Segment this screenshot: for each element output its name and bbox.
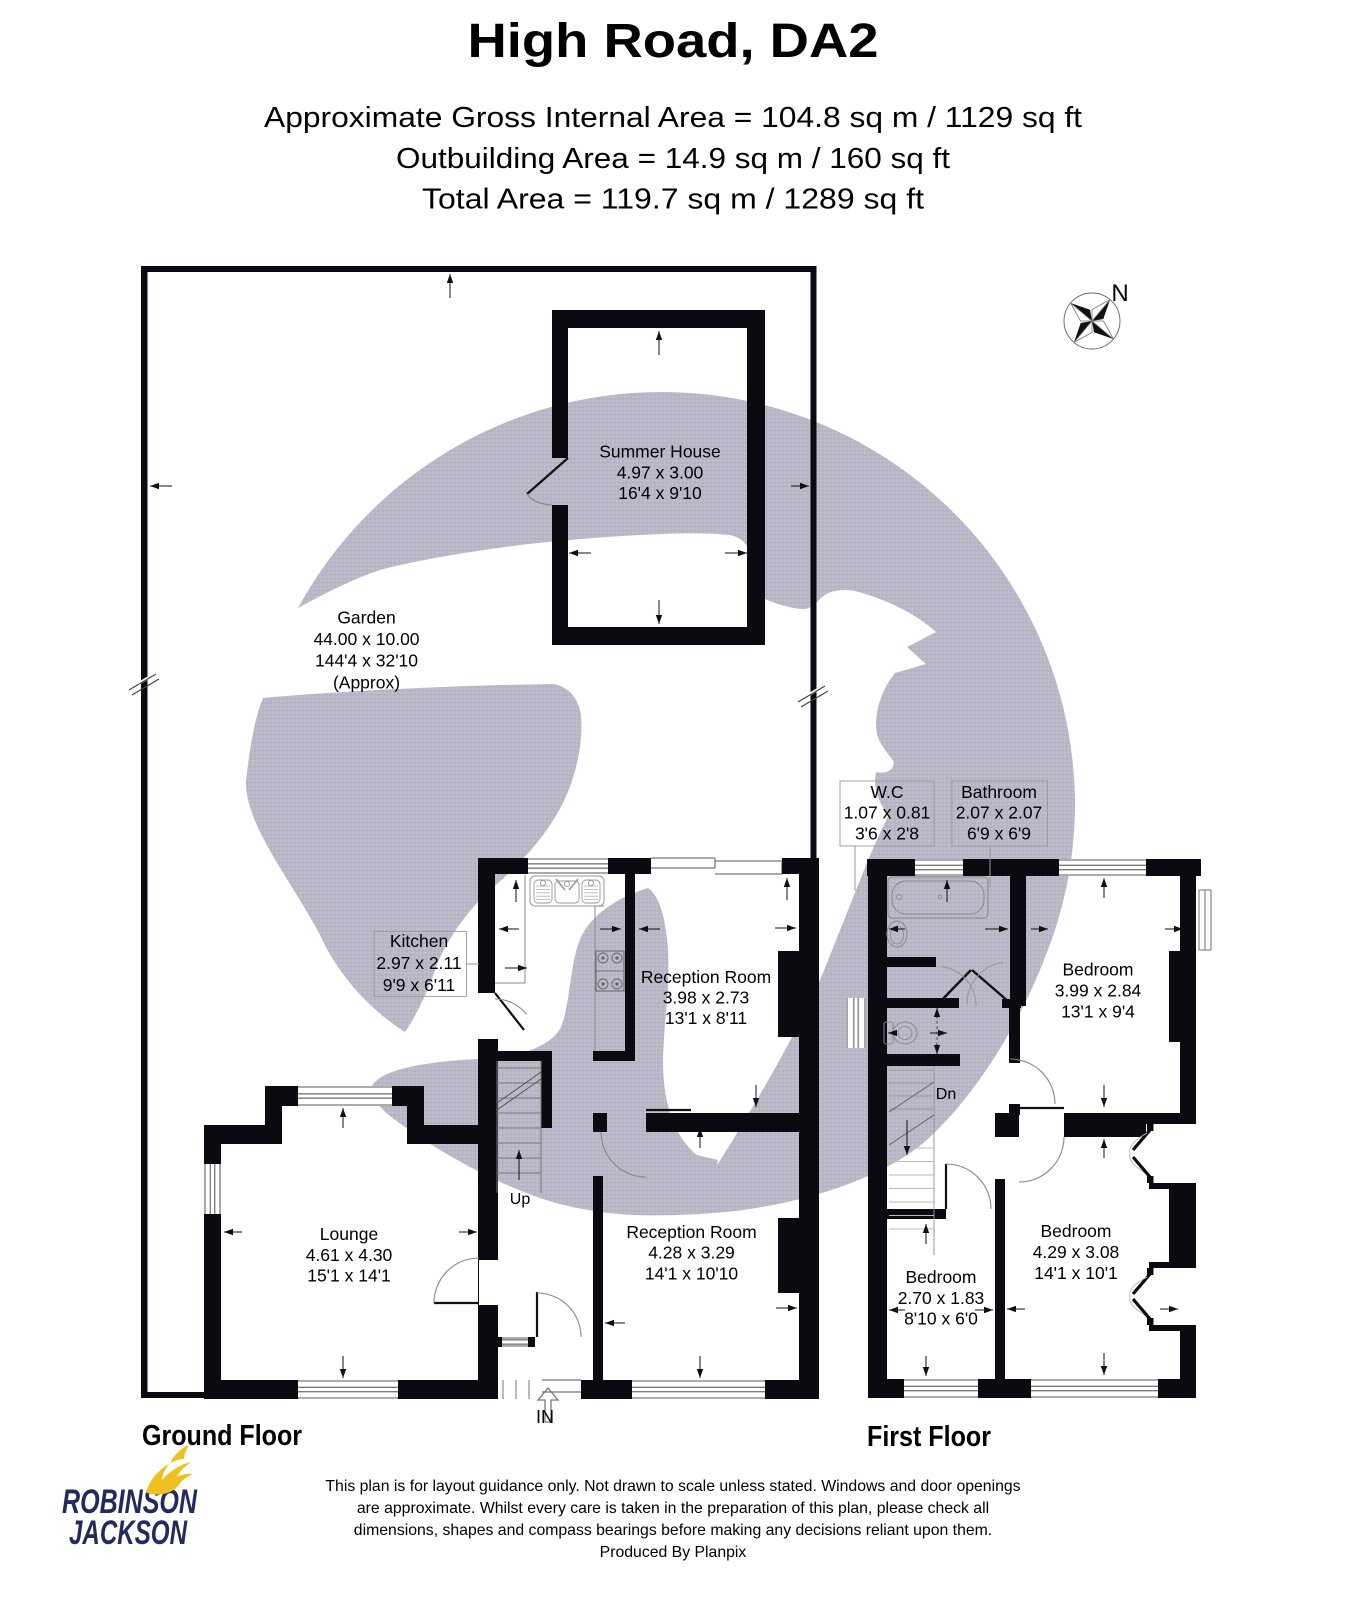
svg-text:3.98 x 2.73: 3.98 x 2.73 <box>663 988 750 1008</box>
svg-text:Total Area = 119.7 sq m / 1289: Total Area = 119.7 sq m / 1289 sq ft <box>422 184 924 216</box>
svg-text:15'1 x 14'1: 15'1 x 14'1 <box>307 1266 391 1286</box>
svg-text:Ground Floor: Ground Floor <box>142 1420 302 1452</box>
svg-text:13'1 x 8'11: 13'1 x 8'11 <box>665 1008 747 1028</box>
svg-text:14'1 x 10'1: 14'1 x 10'1 <box>1034 1263 1118 1283</box>
svg-text:8'10 x 6'0: 8'10 x 6'0 <box>904 1309 978 1329</box>
svg-text:4.29 x 3.08: 4.29 x 3.08 <box>1033 1242 1120 1262</box>
svg-text:JACKSON: JACKSON <box>69 1514 188 1552</box>
svg-text:6'9 x 6'9: 6'9 x 6'9 <box>967 823 1031 843</box>
svg-text:Garden: Garden <box>337 608 395 628</box>
svg-text:Approximate Gross Internal Are: Approximate Gross Internal Area = 104.8 … <box>264 102 1082 134</box>
svg-text:(Approx): (Approx) <box>333 672 400 692</box>
svg-text:3.99 x 2.84: 3.99 x 2.84 <box>1055 980 1142 1000</box>
svg-text:Reception Room: Reception Room <box>626 1222 756 1242</box>
svg-text:9'9 x 6'11: 9'9 x 6'11 <box>383 975 456 995</box>
svg-text:14'1 x 10'10: 14'1 x 10'10 <box>645 1263 739 1283</box>
svg-text:Reception Room: Reception Room <box>641 967 771 987</box>
svg-text:High Road, DA2: High Road, DA2 <box>468 15 879 68</box>
svg-text:2.07 x 2.07: 2.07 x 2.07 <box>956 803 1043 823</box>
svg-text:Bedroom: Bedroom <box>1062 960 1133 980</box>
svg-text:4.28 x 3.29: 4.28 x 3.29 <box>648 1243 735 1263</box>
svg-text:are approximate. Whilst every: are approximate. Whilst every care is ta… <box>357 1500 989 1517</box>
svg-text:N: N <box>1111 280 1128 307</box>
svg-text:Up: Up <box>510 1191 531 1208</box>
svg-text:dimensions, shapes and compass: dimensions, shapes and compass bearings … <box>354 1522 992 1539</box>
svg-text:144'4 x 32'10: 144'4 x 32'10 <box>315 651 418 671</box>
svg-text:First Floor: First Floor <box>867 1421 991 1453</box>
svg-text:2.97 x 2.11: 2.97 x 2.11 <box>376 953 461 973</box>
svg-text:Kitchen: Kitchen <box>390 931 448 951</box>
svg-text:Lounge: Lounge <box>320 1224 378 1244</box>
svg-text:4.97 x 3.00: 4.97 x 3.00 <box>617 462 704 482</box>
svg-text:1.07 x 0.81: 1.07 x 0.81 <box>844 803 931 823</box>
svg-text:Summer House: Summer House <box>599 442 721 462</box>
svg-text:16'4 x 9'10: 16'4 x 9'10 <box>618 483 702 503</box>
svg-text:Bedroom: Bedroom <box>1040 1221 1111 1241</box>
svg-text:Bathroom: Bathroom <box>961 782 1037 802</box>
svg-text:Outbuilding Area = 14.9 sq m /: Outbuilding Area = 14.9 sq m / 160 sq ft <box>396 143 950 175</box>
svg-text:3'6 x 2'8: 3'6 x 2'8 <box>855 823 919 843</box>
svg-text:Bedroom: Bedroom <box>905 1267 976 1287</box>
svg-text:Dn: Dn <box>936 1086 956 1103</box>
svg-text:44.00 x 10.00: 44.00 x 10.00 <box>313 629 419 649</box>
svg-text:2.70 x 1.83: 2.70 x 1.83 <box>898 1288 985 1308</box>
svg-text:13'1 x 9'4: 13'1 x 9'4 <box>1061 1001 1135 1021</box>
svg-text:IN: IN <box>536 1407 554 1427</box>
svg-text:4.61 x 4.30: 4.61 x 4.30 <box>306 1245 393 1265</box>
svg-text:Produced By Planpix: Produced By Planpix <box>600 1544 747 1561</box>
svg-text:This plan is for layout guidan: This plan is for layout guidance only. N… <box>325 1478 1020 1495</box>
svg-text:W.C: W.C <box>870 782 903 802</box>
